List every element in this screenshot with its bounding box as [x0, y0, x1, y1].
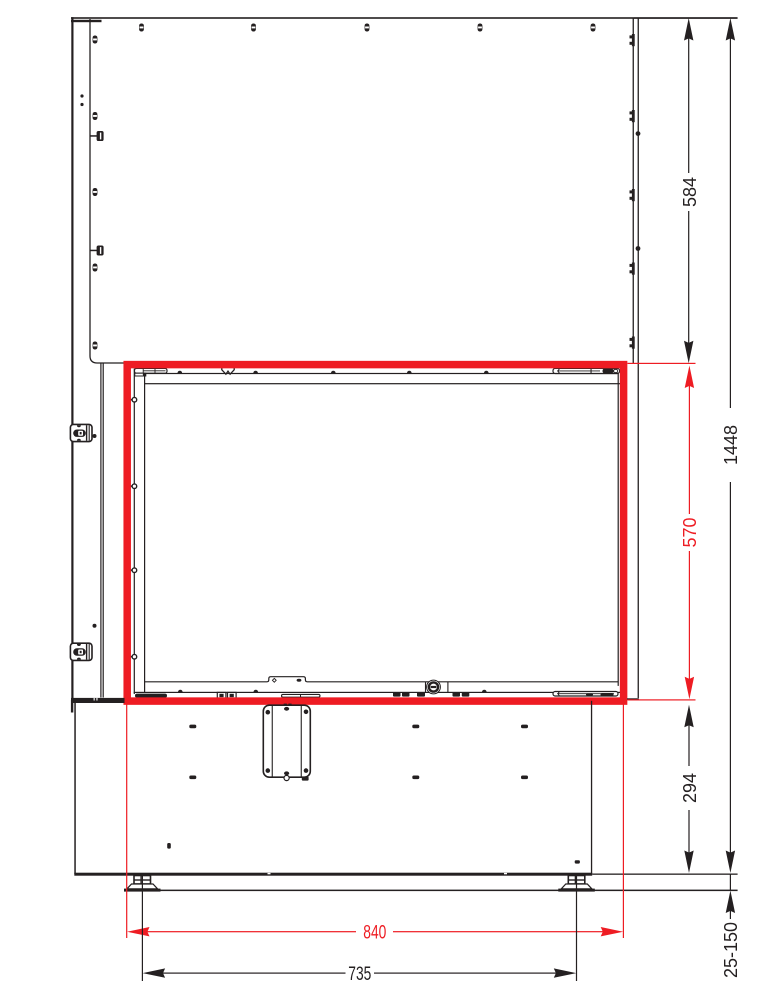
- svg-text:294: 294: [680, 773, 700, 803]
- svg-text:735: 735: [348, 964, 371, 985]
- svg-text:25-150: 25-150: [721, 922, 741, 978]
- svg-text:584: 584: [680, 177, 700, 207]
- svg-text:1448: 1448: [721, 425, 741, 465]
- svg-text:570: 570: [680, 517, 700, 547]
- svg-text:840: 840: [363, 923, 386, 944]
